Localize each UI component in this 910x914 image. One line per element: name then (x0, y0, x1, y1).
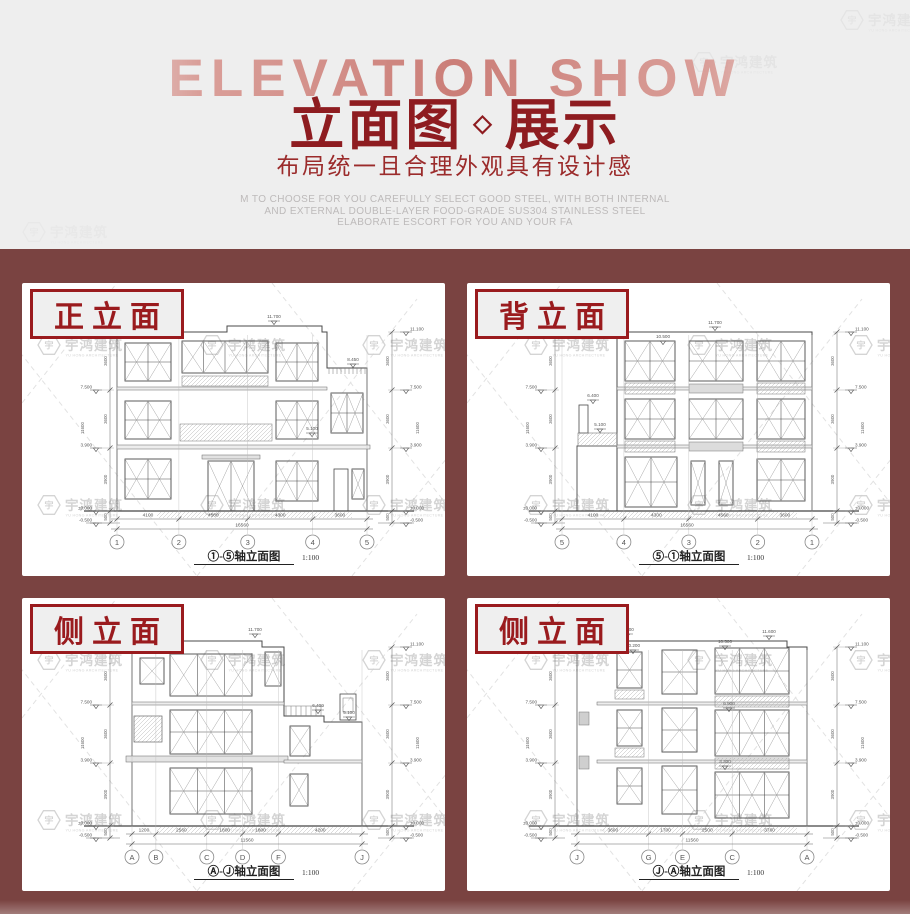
svg-text:11600: 11600 (80, 737, 85, 749)
svg-text:3600: 3600 (548, 414, 553, 424)
svg-text:-0.500: -0.500 (855, 833, 868, 838)
svg-text:11.700: 11.700 (267, 314, 281, 319)
svg-text:YU HONG ARCHITECTURE: YU HONG ARCHITECTURE (391, 354, 444, 358)
svg-text:±0.000: ±0.000 (855, 821, 869, 826)
svg-text:500: 500 (830, 513, 835, 521)
svg-text:4: 4 (622, 538, 626, 547)
svg-text:B: B (153, 853, 158, 862)
svg-text:3900: 3900 (830, 789, 835, 799)
svg-text:3900: 3900 (548, 789, 553, 799)
svg-text:宇鸿建筑: 宇鸿建筑 (552, 337, 610, 353)
svg-text:J: J (360, 853, 364, 862)
svg-text:5.100: 5.100 (343, 710, 355, 715)
svg-text:3600: 3600 (385, 729, 390, 739)
panel-label: 背立面 (475, 289, 629, 339)
svg-text:±0.000: ±0.000 (855, 506, 869, 511)
svg-text:YU HONG ARCHITECTURE: YU HONG ARCHITECTURE (869, 29, 910, 33)
description-line: M TO CHOOSE FOR YOU CAREFULLY SELECT GOO… (0, 194, 910, 206)
svg-text:10.500: 10.500 (656, 334, 670, 339)
svg-text:5.100: 5.100 (306, 426, 318, 431)
svg-text:11.100: 11.100 (855, 327, 869, 332)
panel-label: 侧立面 (475, 604, 629, 654)
svg-text:11.600: 11.600 (762, 629, 776, 634)
svg-text:11.100: 11.100 (855, 642, 869, 647)
svg-text:7.500: 7.500 (526, 700, 538, 705)
svg-text:7.500: 7.500 (410, 700, 422, 705)
svg-text:7.500: 7.500 (855, 700, 867, 705)
svg-text:6.400: 6.400 (587, 393, 599, 398)
svg-text:4200: 4200 (315, 828, 326, 834)
svg-text:3600: 3600 (334, 513, 345, 519)
svg-text:宇: 宇 (369, 814, 378, 825)
svg-text:-0.500: -0.500 (524, 833, 537, 838)
panel-label: 侧立面 (30, 604, 184, 654)
svg-text:YU HONG ARCHITECTURE: YU HONG ARCHITECTURE (66, 669, 119, 673)
svg-text:宇: 宇 (44, 654, 53, 665)
svg-text:宇鸿建筑: 宇鸿建筑 (715, 337, 773, 353)
svg-text:C: C (729, 853, 735, 862)
svg-text:YU HONG ARCHITECTURE: YU HONG ARCHITECTURE (66, 829, 119, 833)
svg-text:±0.000: ±0.000 (78, 506, 92, 511)
svg-text:3600: 3600 (548, 671, 553, 681)
svg-text:YU HONG ARCHITECTURE: YU HONG ARCHITECTURE (878, 354, 891, 358)
svg-text:500: 500 (385, 513, 390, 521)
svg-text:3: 3 (687, 538, 691, 547)
svg-text:宇鸿建筑: 宇鸿建筑 (65, 652, 123, 668)
svg-text:YU HONG ARCHITECTURE: YU HONG ARCHITECTURE (878, 514, 891, 518)
svg-text:宇: 宇 (369, 499, 378, 510)
svg-text:500: 500 (385, 828, 390, 836)
svg-text:3600: 3600 (830, 356, 835, 366)
svg-text:±0.000: ±0.000 (523, 821, 537, 826)
svg-text:3.900: 3.900 (526, 443, 538, 448)
svg-text:16560: 16560 (680, 523, 694, 529)
svg-text:3: 3 (246, 538, 250, 547)
svg-text:3900: 3900 (385, 474, 390, 484)
svg-text:6.900: 6.900 (723, 701, 735, 706)
svg-text:宇: 宇 (856, 654, 865, 665)
svg-text:11.700: 11.700 (708, 320, 722, 325)
svg-text:宇鸿建筑: 宇鸿建筑 (877, 497, 890, 513)
panel-front-elevation: 正立面 宇宇鸿建筑YU HONG ARCHITECTURE宇宇鸿建筑YU HON… (22, 283, 445, 576)
svg-text:宇: 宇 (369, 339, 378, 350)
svg-text:3900: 3900 (385, 789, 390, 799)
svg-text:1:100: 1:100 (302, 868, 319, 877)
svg-text:①-⑤轴立面图: ①-⑤轴立面图 (208, 549, 281, 563)
svg-text:500: 500 (103, 828, 108, 836)
svg-text:C: C (204, 853, 210, 862)
svg-text:1:100: 1:100 (747, 553, 764, 562)
svg-text:⑤-①轴立面图: ⑤-①轴立面图 (653, 549, 726, 563)
svg-text:-0.500: -0.500 (410, 833, 423, 838)
svg-text:G: G (646, 853, 652, 862)
svg-text:1200: 1200 (139, 828, 150, 834)
svg-text:E: E (680, 853, 685, 862)
page: 宇宇鸿建筑YU HONG ARCHITECTURE宇宇鸿建筑YU HONG AR… (0, 0, 910, 914)
svg-text:11.100: 11.100 (410, 327, 424, 332)
svg-text:7.500: 7.500 (410, 385, 422, 390)
svg-text:11600: 11600 (525, 737, 530, 749)
svg-text:宇: 宇 (369, 654, 378, 665)
svg-text:4100: 4100 (588, 513, 599, 519)
svg-text:3600: 3600 (830, 671, 835, 681)
svg-text:宇: 宇 (207, 654, 216, 665)
svg-text:4560: 4560 (718, 513, 729, 519)
svg-text:Ⓙ-Ⓐ轴立面图: Ⓙ-Ⓐ轴立面图 (653, 864, 726, 878)
svg-text:YU HONG ARCHITECTURE: YU HONG ARCHITECTURE (391, 669, 444, 673)
svg-text:3600: 3600 (830, 729, 835, 739)
svg-text:宇鸿建筑: 宇鸿建筑 (868, 12, 910, 28)
svg-text:3.900: 3.900 (81, 443, 93, 448)
svg-text:±0.000: ±0.000 (410, 506, 424, 511)
svg-text:宇鸿建筑: 宇鸿建筑 (390, 337, 445, 353)
svg-text:±0.000: ±0.000 (410, 821, 424, 826)
panel-side-elevation-left: 侧立面 宇宇鸿建筑YU HONG ARCHITECTURE宇宇鸿建筑YU HON… (22, 598, 445, 891)
svg-text:500: 500 (103, 513, 108, 521)
svg-text:1:100: 1:100 (302, 553, 319, 562)
svg-text:3600: 3600 (385, 671, 390, 681)
svg-text:11.100: 11.100 (410, 642, 424, 647)
svg-text:7.500: 7.500 (526, 385, 538, 390)
svg-text:5: 5 (560, 538, 564, 547)
svg-text:F: F (276, 853, 281, 862)
svg-text:500: 500 (548, 828, 553, 836)
svg-text:3900: 3900 (548, 474, 553, 484)
svg-text:11600: 11600 (415, 737, 420, 749)
svg-text:500: 500 (548, 513, 553, 521)
svg-text:宇鸿建筑: 宇鸿建筑 (552, 652, 610, 668)
svg-text:4100: 4100 (143, 513, 154, 519)
svg-text:宇: 宇 (531, 654, 540, 665)
svg-text:3900: 3900 (103, 474, 108, 484)
svg-text:4: 4 (311, 538, 315, 547)
svg-text:3600: 3600 (103, 414, 108, 424)
svg-text:7.500: 7.500 (81, 385, 93, 390)
svg-text:宇: 宇 (847, 14, 856, 25)
svg-text:3600: 3600 (607, 828, 618, 834)
svg-text:宇: 宇 (856, 339, 865, 350)
svg-text:16560: 16560 (235, 523, 249, 529)
svg-text:3600: 3600 (103, 729, 108, 739)
svg-text:8.450: 8.450 (347, 357, 359, 362)
svg-text:11600: 11600 (80, 422, 85, 434)
svg-text:宇: 宇 (694, 814, 703, 825)
svg-text:1700: 1700 (660, 828, 671, 834)
svg-text:宇: 宇 (694, 654, 703, 665)
svg-text:3.300: 3.300 (719, 759, 731, 764)
svg-text:3760: 3760 (764, 828, 775, 834)
svg-text:11.700: 11.700 (248, 627, 262, 632)
svg-text:宇: 宇 (207, 814, 216, 825)
description-line: AND EXTERNAL DOUBLE-LAYER FOOD-GRADE SUS… (0, 206, 910, 218)
svg-text:1: 1 (810, 538, 814, 547)
svg-text:宇: 宇 (531, 339, 540, 350)
svg-text:3600: 3600 (103, 671, 108, 681)
panel-back-elevation: 背立面 宇宇鸿建筑YU HONG ARCHITECTURE宇宇鸿建筑YU HON… (467, 283, 890, 576)
svg-text:YU HONG ARCHITECTURE: YU HONG ARCHITECTURE (66, 354, 119, 358)
svg-text:3.900: 3.900 (410, 758, 422, 763)
svg-text:11600: 11600 (525, 422, 530, 434)
svg-text:J: J (575, 853, 579, 862)
svg-text:1800: 1800 (255, 828, 266, 834)
svg-text:宇鸿建筑: 宇鸿建筑 (390, 652, 445, 668)
svg-text:1: 1 (115, 538, 119, 547)
svg-text:宇: 宇 (44, 339, 53, 350)
svg-text:3.900: 3.900 (855, 443, 867, 448)
svg-text:3600: 3600 (385, 356, 390, 366)
description-line: ELABORATE ESCORT FOR YOU AND YOUR FA (0, 217, 910, 229)
svg-text:2560: 2560 (176, 828, 187, 834)
svg-text:宇鸿建筑: 宇鸿建筑 (877, 337, 890, 353)
panel-label: 正立面 (30, 289, 184, 339)
svg-text:YU HONG ARCHITECTURE: YU HONG ARCHITECTURE (716, 354, 769, 358)
svg-text:1800: 1800 (219, 828, 230, 834)
svg-text:-0.500: -0.500 (79, 518, 92, 523)
svg-text:宇: 宇 (44, 814, 53, 825)
svg-text:宇: 宇 (44, 499, 53, 510)
svg-text:4300: 4300 (651, 513, 662, 519)
svg-text:11560: 11560 (241, 838, 254, 844)
svg-text:2: 2 (177, 538, 181, 547)
svg-text:11600: 11600 (860, 422, 865, 434)
svg-text:-0.500: -0.500 (524, 518, 537, 523)
svg-text:YU HONG ARCHITECTURE: YU HONG ARCHITECTURE (51, 241, 104, 245)
svg-text:-0.500: -0.500 (855, 518, 868, 523)
svg-text:500: 500 (830, 828, 835, 836)
svg-text:2500: 2500 (702, 828, 713, 834)
svg-text:3.900: 3.900 (855, 758, 867, 763)
svg-text:4560: 4560 (208, 513, 219, 519)
svg-text:D: D (240, 853, 246, 862)
svg-text:7.500: 7.500 (855, 385, 867, 390)
svg-text:5.100: 5.100 (594, 422, 606, 427)
svg-text:YU HONG ARCHITECTURE: YU HONG ARCHITECTURE (553, 669, 606, 673)
svg-text:YU HONG ARCHITECTURE: YU HONG ARCHITECTURE (878, 669, 891, 673)
svg-text:3.900: 3.900 (410, 443, 422, 448)
svg-text:3600: 3600 (830, 414, 835, 424)
svg-text:-0.500: -0.500 (410, 518, 423, 523)
svg-text:A: A (804, 853, 809, 862)
svg-text:3600: 3600 (779, 513, 790, 519)
svg-text:4300: 4300 (275, 513, 286, 519)
svg-text:宇鸿建筑: 宇鸿建筑 (877, 652, 890, 668)
description: M TO CHOOSE FOR YOU CAREFULLY SELECT GOO… (0, 194, 910, 229)
svg-text:YU HONG ARCHITECTURE: YU HONG ARCHITECTURE (553, 354, 606, 358)
svg-text:±0.000: ±0.000 (523, 506, 537, 511)
svg-text:11600: 11600 (415, 422, 420, 434)
svg-text:6.400: 6.400 (312, 703, 324, 708)
svg-text:3600: 3600 (548, 729, 553, 739)
svg-text:5: 5 (365, 538, 369, 547)
svg-text:3900: 3900 (103, 789, 108, 799)
svg-text:10.500: 10.500 (718, 639, 732, 644)
svg-text:11600: 11600 (860, 737, 865, 749)
svg-text:3600: 3600 (548, 356, 553, 366)
svg-text:Ⓐ-Ⓙ轴立面图: Ⓐ-Ⓙ轴立面图 (208, 864, 281, 878)
svg-text:-0.500: -0.500 (79, 833, 92, 838)
subtitle: 布局统一且合理外观具有设计感 (0, 147, 910, 181)
svg-text:A: A (129, 853, 134, 862)
svg-text:3600: 3600 (103, 356, 108, 366)
svg-text:7.500: 7.500 (81, 700, 93, 705)
svg-text:宇鸿建筑: 宇鸿建筑 (65, 337, 123, 353)
diamond-icon: ◇ (473, 109, 494, 138)
svg-text:3.900: 3.900 (526, 758, 538, 763)
svg-text:±0.000: ±0.000 (78, 821, 92, 826)
svg-text:1:100: 1:100 (747, 868, 764, 877)
svg-text:2: 2 (756, 538, 760, 547)
svg-text:宇鸿建筑: 宇鸿建筑 (877, 812, 890, 828)
svg-text:YU HONG ARCHITECTURE: YU HONG ARCHITECTURE (66, 514, 119, 518)
svg-text:3.900: 3.900 (81, 758, 93, 763)
svg-text:YU HONG ARCHITECTURE: YU HONG ARCHITECTURE (716, 669, 769, 673)
svg-text:11560: 11560 (686, 838, 699, 844)
panel-side-elevation-right: 侧立面 宇宇鸿建筑YU HONG ARCHITECTURE宇宇鸿建筑YU HON… (467, 598, 890, 891)
svg-text:3600: 3600 (385, 414, 390, 424)
svg-text:3900: 3900 (830, 474, 835, 484)
svg-text:YU HONG ARCHITECTURE: YU HONG ARCHITECTURE (878, 829, 891, 833)
